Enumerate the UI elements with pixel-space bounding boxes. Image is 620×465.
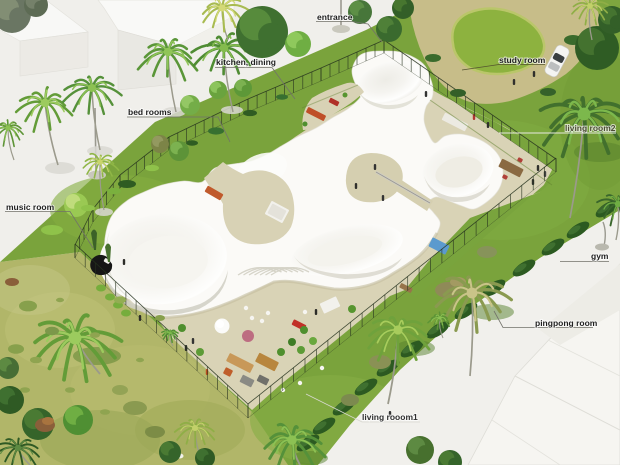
svg-text:entrance: entrance — [317, 12, 353, 22]
svg-text:music room: music room — [6, 202, 55, 212]
svg-text:study room: study room — [499, 55, 546, 65]
svg-text:living rooom1: living rooom1 — [362, 412, 418, 422]
svg-text:pingpong room: pingpong room — [535, 318, 598, 328]
svg-text:living room2: living room2 — [565, 123, 616, 133]
svg-text:kitchen, dining: kitchen, dining — [216, 57, 276, 67]
svg-text:bed rooms: bed rooms — [128, 107, 172, 117]
svg-text:gym: gym — [591, 251, 609, 261]
